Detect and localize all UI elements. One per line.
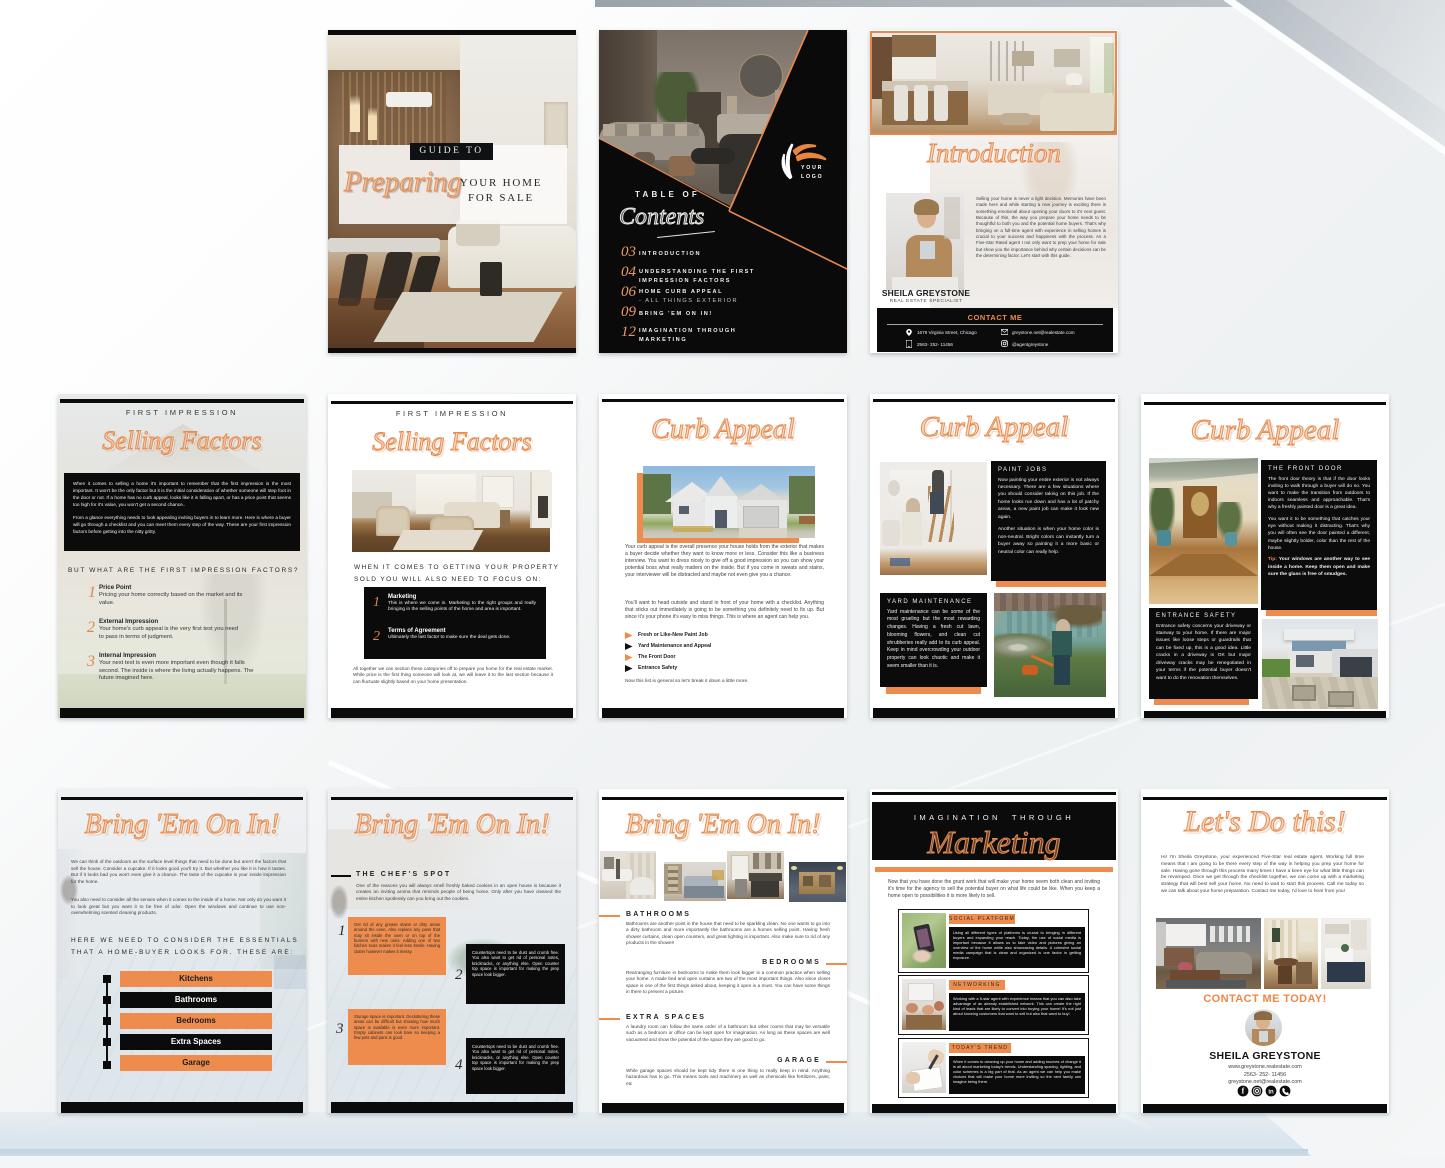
svg-text:in: in bbox=[1268, 1089, 1274, 1095]
svg-text:f: f bbox=[1242, 1087, 1245, 1096]
